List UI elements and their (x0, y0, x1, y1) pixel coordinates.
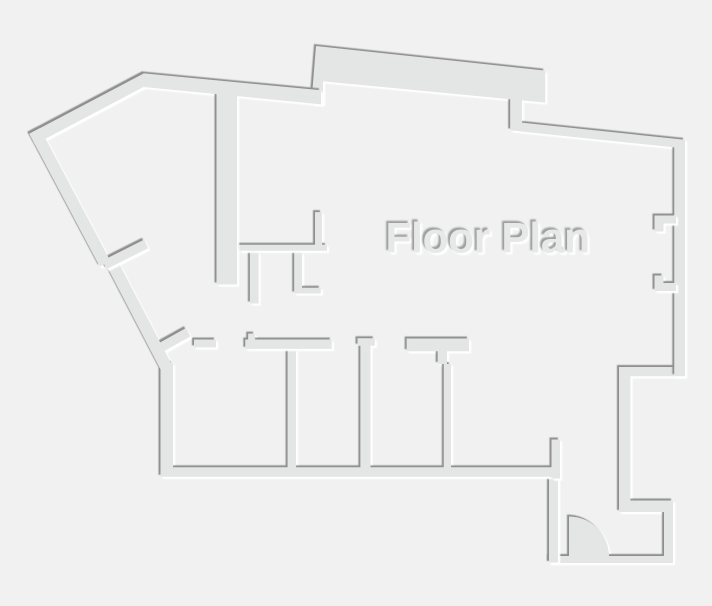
svg-text:Floor Plan: Floor Plan (386, 216, 590, 263)
